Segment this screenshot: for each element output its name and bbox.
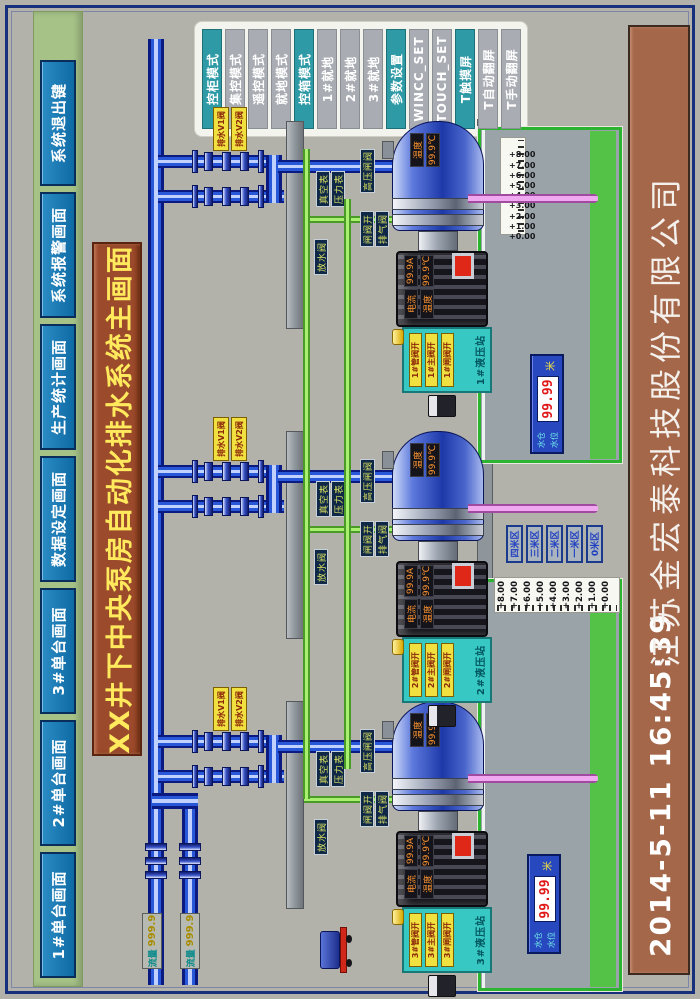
unit-1#-valve-flange — [222, 152, 231, 171]
unit-1#-motor-temp-value: 99.9℃ — [420, 255, 434, 287]
unit-1#-motor-run-indicator — [452, 253, 474, 279]
unit-2#-valve-flange — [222, 462, 231, 481]
unit-3#-pipe-cap — [258, 730, 264, 753]
unit-1#-hydro-strip-2: 1#主阀开 — [425, 333, 438, 387]
aux-pump-device — [320, 927, 350, 973]
mode-button-5[interactable]: 控箱模式 — [294, 29, 314, 129]
unit-2#-hydraulic-station: 2#管阀开2#主阀开2#闸阀开2#液压站 — [402, 637, 492, 703]
unit-3#-motor-temp-label: 温度 — [420, 869, 434, 899]
water-level-label: 水仓 — [533, 932, 544, 948]
ruler-label: +7.00 — [509, 161, 535, 170]
screenshot-viewport: XX井下中央泵房自动化排水系统主画面 +8.00+7.00+6.00+5.00+… — [0, 0, 700, 999]
unit-1#-discharge-manifold — [286, 121, 304, 329]
unit-3#-discharge-manifold — [286, 701, 304, 909]
unit-2#-pipe-cap — [258, 495, 264, 518]
flow-value: 999.9 — [147, 915, 158, 947]
unit-3#-vent-valve-label: 排气阀 — [375, 791, 389, 827]
ruler-label: +1.00 — [509, 222, 535, 231]
unit-3#-vacuum-gauge-label: 真空表 — [316, 751, 330, 787]
aux-pump-wheel — [346, 959, 352, 967]
water-level-label: 水位 — [546, 932, 557, 948]
unit-2#-pipe-cap — [192, 460, 198, 483]
aux-pump-body — [320, 931, 340, 969]
water-level-label: 水仓 — [536, 432, 547, 448]
ruler-label: +3.00 — [562, 581, 572, 609]
unit-1#-coupling — [418, 231, 458, 251]
unit-1#-valve-flange — [240, 187, 249, 206]
unit-3#-valve-tag-1: 排水V1阀 — [213, 687, 229, 731]
unit-3#-valve-flange — [204, 767, 213, 786]
unit-2#-motor-current-value: 99.9A — [404, 565, 418, 597]
unit-2#-hydro-strip-3: 2#闸阀开 — [441, 643, 454, 697]
unit-1#-pipe-cap — [258, 185, 264, 208]
ruler-label: +0.00 — [509, 232, 535, 241]
unit-1#-discharge-valve-label: 高压闸阀 — [360, 149, 375, 193]
unit-3#-valve-tag-2: 排水V2阀 — [231, 687, 247, 731]
unit-2#-motor-temp-value: 99.9℃ — [420, 565, 434, 597]
unit-3#-coupling — [418, 811, 458, 831]
nav-button-5[interactable]: 生产统计画面 — [40, 324, 76, 450]
unit-2#-pressure-gauge-label: 压力表 — [331, 481, 345, 517]
unit-3#-pipe-cap — [192, 765, 198, 788]
unit-2#-pump-outlet-flange — [382, 451, 394, 469]
ruler-label: +7.00 — [510, 581, 520, 609]
unit-1#-vacuum-gauge-label: 真空表 — [316, 171, 330, 207]
unit-1#-valve-tag-1: 排水V1阀 — [213, 107, 229, 151]
unit-3#-pressure-gauge-label: 压力表 — [331, 751, 345, 787]
unit-1#-pipe-cap — [258, 150, 264, 173]
flow-value: 999.9 — [185, 915, 196, 947]
unit-1#-valve-tag-2: 排水V2阀 — [231, 107, 247, 151]
unit-3#-hydro-title: 3#液压站 — [472, 909, 487, 971]
water-level-value: 99.99 — [534, 876, 556, 922]
unit-1#-pump-band — [392, 214, 484, 226]
flow-meter-2: 流量999.9 — [180, 913, 200, 969]
unit-3#-valve-flange — [240, 767, 249, 786]
nav-button-4[interactable]: 数据设定画面 — [40, 456, 76, 582]
unit-2#-valve-flange — [222, 497, 231, 516]
unit-3#-pipe-cap — [258, 765, 264, 788]
unit-1#-vent-valve-label: 排气阀 — [375, 211, 389, 247]
ruler-label: +1.00 — [588, 581, 598, 609]
unit-2#-valve-tag-1: 排水V1阀 — [213, 417, 229, 461]
pipe-flange — [179, 843, 201, 851]
ruler-label: +8.00 — [497, 581, 507, 609]
unit-1#-valve-flange — [222, 187, 231, 206]
unit-1#-gate-valve-label: 闸阀开 — [360, 211, 374, 247]
vacuum-header-pipe-1 — [303, 149, 310, 799]
unit-3#-hydro-strip-1: 3#管阀开 — [409, 913, 422, 967]
unit-3#-gate-valve-label: 闸阀开 — [360, 791, 374, 827]
nav-button-2[interactable]: 2#单台画面 — [40, 720, 76, 846]
unit-3#-valve-flange — [240, 732, 249, 751]
zone-button-1[interactable]: 四米区 — [506, 525, 523, 563]
nav-button-7[interactable]: 系统退出键 — [40, 60, 76, 186]
unit-1#-hydro-strip-1: 1#管阀开 — [409, 333, 422, 387]
ruler-label: +8.00 — [509, 150, 535, 159]
ruler-label: +6.00 — [509, 171, 535, 180]
ruler-label: +5.00 — [509, 181, 535, 190]
water-level-label: 水位 — [549, 432, 560, 448]
mode-button-9[interactable]: 参数设置 — [386, 29, 406, 129]
mode-button-8[interactable]: 3#就地 — [363, 29, 383, 129]
unit-2#-valve-tag-2: 排水V2阀 — [231, 417, 247, 461]
flow-meter-1: 流量999.9 — [142, 913, 162, 969]
unit-1#-vacuum-pump-icon — [428, 395, 456, 417]
inlet-elbow — [152, 793, 198, 809]
ruler-label: +2.00 — [509, 212, 535, 221]
unit-1#-pressure-gauge-label: 压力表 — [331, 171, 345, 207]
mode-button-10[interactable]: WINCC_SET — [409, 29, 429, 129]
unit-2#-pump-temp-value: 99.9℃ — [426, 443, 440, 477]
water-level-display: 水仓水位99.99米 — [527, 854, 561, 954]
unit-1#-suction-drop-pipe — [468, 194, 598, 203]
nav-button-3[interactable]: 3#单台画面 — [40, 588, 76, 714]
aux-pump-base — [340, 927, 347, 973]
unit-2#-discharge-manifold — [286, 431, 304, 639]
unit-2#-vent-valve-label: 排气阀 — [375, 521, 389, 557]
unit-3#-pump-outlet-flange — [382, 721, 394, 739]
mode-button-3[interactable]: 遥控模式 — [248, 29, 268, 129]
unit-1#-motor-current-value: 99.9A — [404, 255, 418, 287]
unit-2#-pipe-cap — [258, 460, 264, 483]
company-name: 江苏金宏泰科技股份有限公司 — [641, 173, 687, 667]
mode-button-13[interactable]: T自动翻屏 — [478, 29, 498, 129]
unit-1#-pump-outlet-flange — [382, 141, 394, 159]
unit-3#-hydro-strip-2: 3#主阀开 — [425, 913, 438, 967]
unit-3#-motor-run-indicator — [452, 833, 474, 859]
water-level-value: 99.99 — [537, 376, 559, 422]
water-level-unit: 米 — [542, 361, 557, 371]
unit-2#-pipe-cap — [192, 495, 198, 518]
unit-2#-vacuum-drop-pipe — [304, 526, 404, 533]
unit-3#-pump-band — [392, 794, 484, 806]
unit-3#-hydro-strip-3: 3#闸阀开 — [441, 913, 454, 967]
ruler-label: +5.00 — [536, 581, 546, 609]
sump-left-floor — [590, 583, 616, 987]
ruler-label: +0.00 — [601, 581, 611, 609]
unit-3#-hydro-stub — [392, 909, 404, 925]
unit-2#-vacuum-pump-icon — [428, 705, 456, 727]
unit-3#-discharge-valve-label: 高压闸阀 — [360, 729, 375, 773]
flow-label: 流量 — [184, 949, 197, 967]
level-ruler-left-sump: +8.00+7.00+6.00+5.00+4.00+3.00+2.00+1.00… — [494, 577, 620, 613]
unit-1#-hydro-title: 1#液压站 — [472, 329, 487, 391]
pipe-flange — [145, 871, 167, 879]
zone-button-5[interactable]: 0米区 — [586, 525, 603, 563]
unit-2#-hydro-strip-1: 2#管阀开 — [409, 643, 422, 697]
unit-2#-motor-temp-label: 温度 — [420, 599, 434, 629]
mode-button-12[interactable]: T触摸屏 — [455, 29, 475, 129]
unit-3#-motor-temp-value: 99.9℃ — [420, 835, 434, 867]
zone-button-2[interactable]: 三米区 — [526, 525, 543, 563]
pipe-flange — [145, 857, 167, 865]
flow-label: 流量 — [146, 949, 159, 967]
unit-2#-hydro-strip-2: 2#主阀开 — [425, 643, 438, 697]
unit-2#-hydro-stub — [392, 639, 404, 655]
mode-button-6[interactable]: 1#就地 — [317, 29, 337, 129]
footer-bar: 2014-5-11 16:45:39 江苏金宏泰科技股份有限公司 — [628, 25, 690, 975]
unit-2#-motor-current-label: 电流 — [404, 599, 418, 629]
unit-3#-valve-flange — [222, 767, 231, 786]
nav-button-1[interactable]: 1#单台画面 — [40, 852, 76, 978]
ruler-label: +4.00 — [549, 581, 559, 609]
unit-3#-motor-current-value: 99.9A — [404, 835, 418, 867]
aux-pump-wheel — [346, 935, 352, 943]
mode-button-11[interactable]: TOUCH_SET — [432, 29, 452, 129]
unit-1#-vacuum-drop-pipe — [304, 216, 404, 223]
sump-right-floor — [590, 131, 616, 459]
unit-3#-vacuum-pump-icon — [428, 975, 456, 997]
unit-2#-discharge-valve-label: 高压闸阀 — [360, 459, 375, 503]
unit-3#-hydraulic-station: 3#管阀开3#主阀开3#闸阀开3#液压站 — [402, 907, 492, 973]
unit-3#-valve-flange — [204, 732, 213, 751]
unit-2#-gate-valve-label: 闸阀开 — [360, 521, 374, 557]
unit-2#-coupling — [418, 541, 458, 561]
page-title: XX井下中央泵房自动化排水系统主画面 — [92, 242, 142, 756]
water-level-display: 水仓水位99.99米 — [530, 354, 564, 454]
unit-3#-valve-flange — [222, 732, 231, 751]
unit-3#-vacuum-drop-pipe — [304, 796, 404, 803]
unit-3#-pipe-cap — [192, 730, 198, 753]
unit-3#-pump-temp-label: 温度 — [410, 713, 424, 747]
ruler-label: +6.00 — [523, 581, 533, 609]
mode-button-14[interactable]: T手动翻屏 — [501, 29, 521, 129]
unit-2#-pump-band — [392, 524, 484, 536]
unit-3#-suction-drop-pipe — [468, 774, 598, 783]
unit-1#-hydro-stub — [392, 329, 404, 345]
water-level-unit: 米 — [539, 861, 554, 871]
unit-1#-hydro-strip-3: 1#闸阀开 — [441, 333, 454, 387]
mode-button-4[interactable]: 就地模式 — [271, 29, 291, 129]
unit-1#-pump-temp-value: 99.9℃ — [426, 133, 440, 167]
unit-2#-valve-flange — [204, 462, 213, 481]
unit-1#-drain-valve-label: 放水阀 — [314, 239, 328, 275]
unit-1#-pipe-cap — [192, 185, 198, 208]
unit-2#-valve-flange — [240, 497, 249, 516]
unit-2#-suction-drop-pipe — [468, 504, 598, 513]
level-ruler-right-sump: +8.00+7.00+6.00+5.00+4.00+3.00+2.00+1.00… — [500, 137, 526, 235]
mode-button-7[interactable]: 2#就地 — [340, 29, 360, 129]
pipe-flange — [179, 857, 201, 865]
ruler-label: +2.00 — [575, 581, 585, 609]
unit-1#-motor-current-label: 电流 — [404, 289, 418, 319]
unit-1#-hydraulic-station: 1#管阀开1#主阀开1#闸阀开1#液压站 — [402, 327, 492, 393]
unit-2#-drain-valve-label: 放水阀 — [314, 549, 328, 585]
unit-2#-motor-run-indicator — [452, 563, 474, 589]
unit-2#-vacuum-gauge-label: 真空表 — [316, 481, 330, 517]
pipe-flange — [179, 871, 201, 879]
unit-2#-valve-flange — [204, 497, 213, 516]
nav-button-6[interactable]: 系统报警画面 — [40, 192, 76, 318]
unit-2#-valve-flange — [240, 462, 249, 481]
unit-1#-pipe-cap — [192, 150, 198, 173]
unit-1#-motor-temp-label: 温度 — [420, 289, 434, 319]
unit-1#-pump-temp-label: 温度 — [410, 133, 424, 167]
hmi-stage: XX井下中央泵房自动化排水系统主画面 +8.00+7.00+6.00+5.00+… — [0, 0, 700, 999]
unit-3#-motor-current-label: 电流 — [404, 869, 418, 899]
pipe-flange — [145, 843, 167, 851]
zone-button-3[interactable]: 二米区 — [546, 525, 563, 563]
unit-3#-drain-valve-label: 放水阀 — [314, 819, 328, 855]
unit-1#-valve-flange — [240, 152, 249, 171]
unit-2#-pump-temp-label: 温度 — [410, 443, 424, 477]
unit-2#-hydro-title: 2#液压站 — [472, 639, 487, 701]
zone-button-4[interactable]: 一米区 — [566, 525, 583, 563]
vacuum-header-pipe-2 — [344, 199, 351, 769]
unit-1#-valve-flange — [204, 152, 213, 171]
unit-1#-valve-flange — [204, 187, 213, 206]
